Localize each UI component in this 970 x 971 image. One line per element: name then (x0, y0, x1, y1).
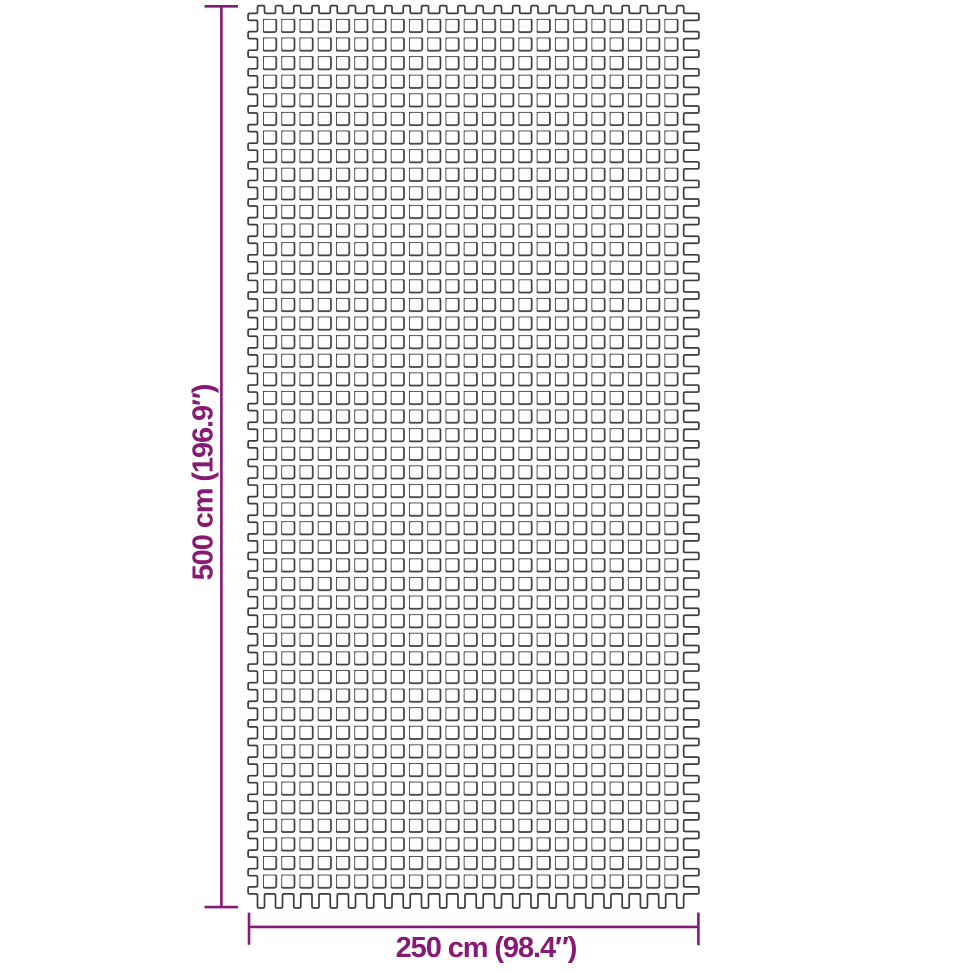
svg-text:500 cm (196.9″): 500 cm (196.9″) (187, 384, 219, 580)
svg-text:250 cm (98.4″): 250 cm (98.4″) (396, 932, 577, 964)
